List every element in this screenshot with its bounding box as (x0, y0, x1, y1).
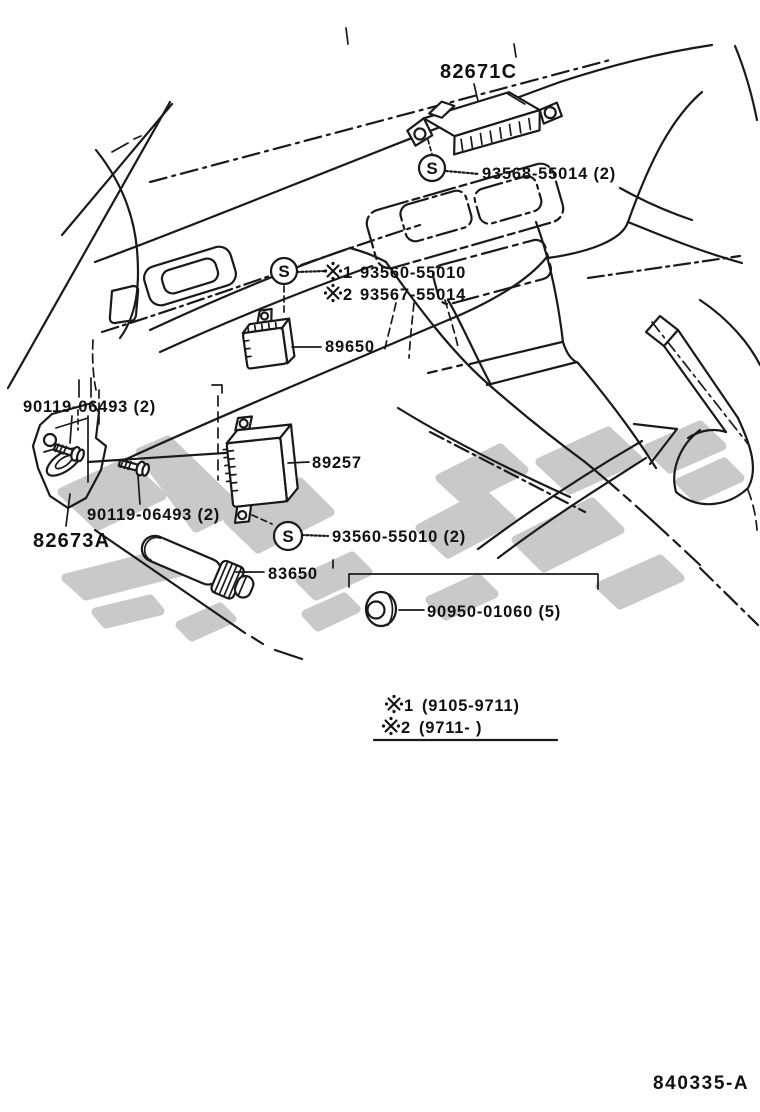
label-variant-screw-1: 193560-55010 (343, 264, 466, 282)
label-89650: 89650 (325, 338, 375, 356)
reference-mark-icon (324, 284, 342, 302)
s-symbol-icon: S (271, 258, 297, 284)
note-line-1: 1(9105-9711) (404, 697, 520, 715)
part-90950-drawing (366, 592, 396, 626)
parts-diagram-page: S S S 82671C 93568-55014 (2) 193560-5501… (0, 0, 760, 1112)
label-90119-upper: 90119-06493 (2) (23, 398, 156, 416)
part-89650-drawing (240, 307, 295, 369)
label-82671c: 82671C (440, 61, 517, 83)
parts-diagram-canvas: S S S 82671C 93568-55014 (2) 193560-5501… (0, 0, 760, 1112)
label-89257: 89257 (312, 454, 362, 472)
s-symbol-letter: S (426, 159, 437, 178)
label-variant-screw-2: 293567-55014 (343, 286, 466, 304)
left-air-vent (141, 244, 239, 309)
screw-90119-upper-drawing (53, 440, 86, 463)
label-90119-lower: 90119-06493 (2) (87, 506, 220, 524)
s-symbol-icon: S (419, 155, 445, 181)
part-82671c-drawing (404, 85, 565, 160)
s-symbol-letter: S (278, 262, 289, 281)
label-90950-01060: 90950-01060 (5) (427, 603, 561, 621)
production-notes: 1(9105-9711) 2(9711- ) (374, 695, 557, 740)
label-83650: 83650 (268, 565, 318, 583)
note-line-2: 2(9711- ) (401, 719, 482, 737)
s-symbol-icon: S (274, 522, 302, 550)
label-93560-55010: 93560-55010 (2) (332, 528, 466, 546)
label-82673a: 82673A (33, 530, 110, 552)
reference-mark-icon (385, 695, 403, 713)
reference-mark-icon (382, 717, 400, 735)
figure-number: 840335-A (653, 1073, 749, 1094)
s-symbol-letter: S (282, 527, 293, 546)
label-93568-55014: 93568-55014 (2) (482, 165, 616, 183)
